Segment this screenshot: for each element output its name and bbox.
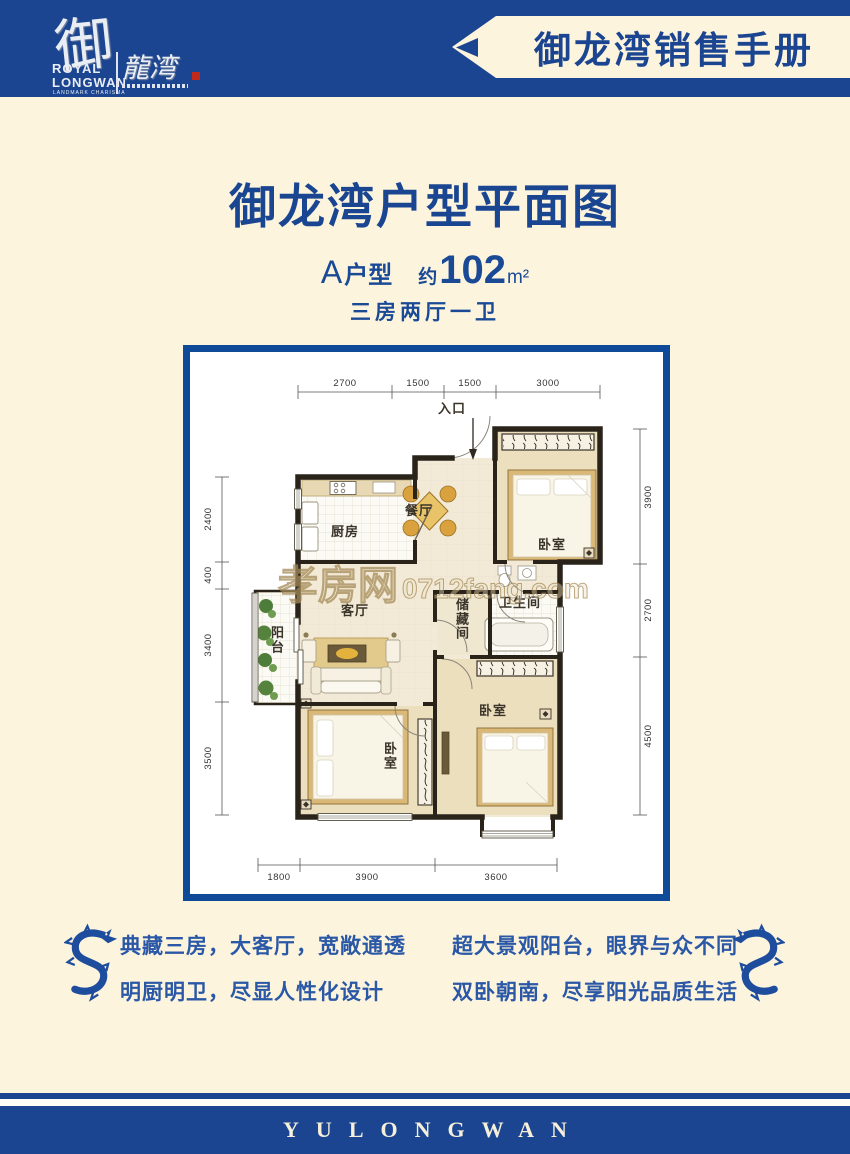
bedroom-top-label: 卧室 [538,537,566,552]
bedroom-right-label: 卧室 [479,703,507,718]
dim-left-3: 3400 [203,633,214,656]
footer-band: YULONGWAN [0,1106,850,1154]
approx-label: 约 [418,262,437,289]
balcony-label: 阳台 [271,625,285,654]
room-count-line: 三房两厅一卫 [0,296,850,326]
dining-label: 餐厅 [404,503,433,518]
brochure-page: 御 ROYAL LONGWAN LANDMARK CHARISMA 龍湾 御龙湾… [0,0,850,1154]
dim-top-1: 2700 [333,378,356,389]
dim-left-4: 3500 [203,746,214,769]
footer-gap [0,1099,850,1106]
feature-left-line-2: 明厨明卫，尽显人性化设计 [120,976,384,1006]
dim-top-2: 1500 [406,378,429,389]
logo-divider [116,52,118,94]
floorplan-box: 2700 1500 1500 3000 2400 400 3400 3500 3… [183,345,670,901]
feature-left-line-1: 典藏三房，大客厅，宽敞通透 [120,930,406,960]
feature-right-line-1: 超大景观阳台，眼界与众不同 [452,930,738,960]
dragon-icon-right [731,923,785,1005]
logo-tagline: LANDMARK CHARISMA [53,90,126,96]
bedroom-left-label: 卧室 [384,741,398,770]
dim-bottom-2: 3900 [355,872,378,883]
dim-bottom-3: 3600 [484,872,507,883]
entrance-label: 入口 [438,401,466,416]
dim-bottom-1: 1800 [267,872,290,883]
dim-right-1: 3900 [643,485,654,508]
dim-top-4: 3000 [536,378,559,389]
brand-logo: 御 ROYAL LONGWAN LANDMARK CHARISMA 龍湾 [52,4,212,96]
area-unit: m² [507,267,529,289]
logo-royal-text: ROYAL [52,61,101,76]
dragon-icon-left [64,923,118,1005]
unit-type-letter: A [321,254,342,291]
title-banner: 御龙湾销售手册 [452,16,850,78]
dim-right-3: 4500 [643,724,654,747]
floorplan-drawing: 2700 1500 1500 3000 2400 400 3400 3500 3… [190,352,663,894]
unit-type-label: 户型 [344,255,392,290]
kitchen-label: 厨房 [331,524,359,539]
logo-script-glyphs: 龍湾 [122,46,176,85]
logo-micro-text-line [122,84,188,88]
area-value: 102 [439,248,506,293]
dim-left-1: 2400 [203,507,214,530]
dim-top-3: 1500 [458,378,481,389]
footer-brand: YULONGWAN [266,1117,584,1143]
living-room-sofa [302,632,400,694]
watermark-cn: 孝房网 [278,564,398,608]
entrance-arrow [469,418,477,460]
unit-subtitle: A 户型 约 102 m² [0,248,850,293]
page-title: 御龙湾户型平面图 [0,168,850,237]
logo-red-seal [192,72,200,80]
watermark-en: 0712fang.com [402,573,589,604]
dim-right-2: 2700 [643,598,654,621]
feature-right-line-2: 双卧朝南，尽享阳光品质生活 [452,976,738,1006]
dim-left-2: 400 [203,566,214,583]
banner-title: 御龙湾销售手册 [534,20,814,74]
header-band: 御 ROYAL LONGWAN LANDMARK CHARISMA 龍湾 御龙湾… [0,0,850,97]
